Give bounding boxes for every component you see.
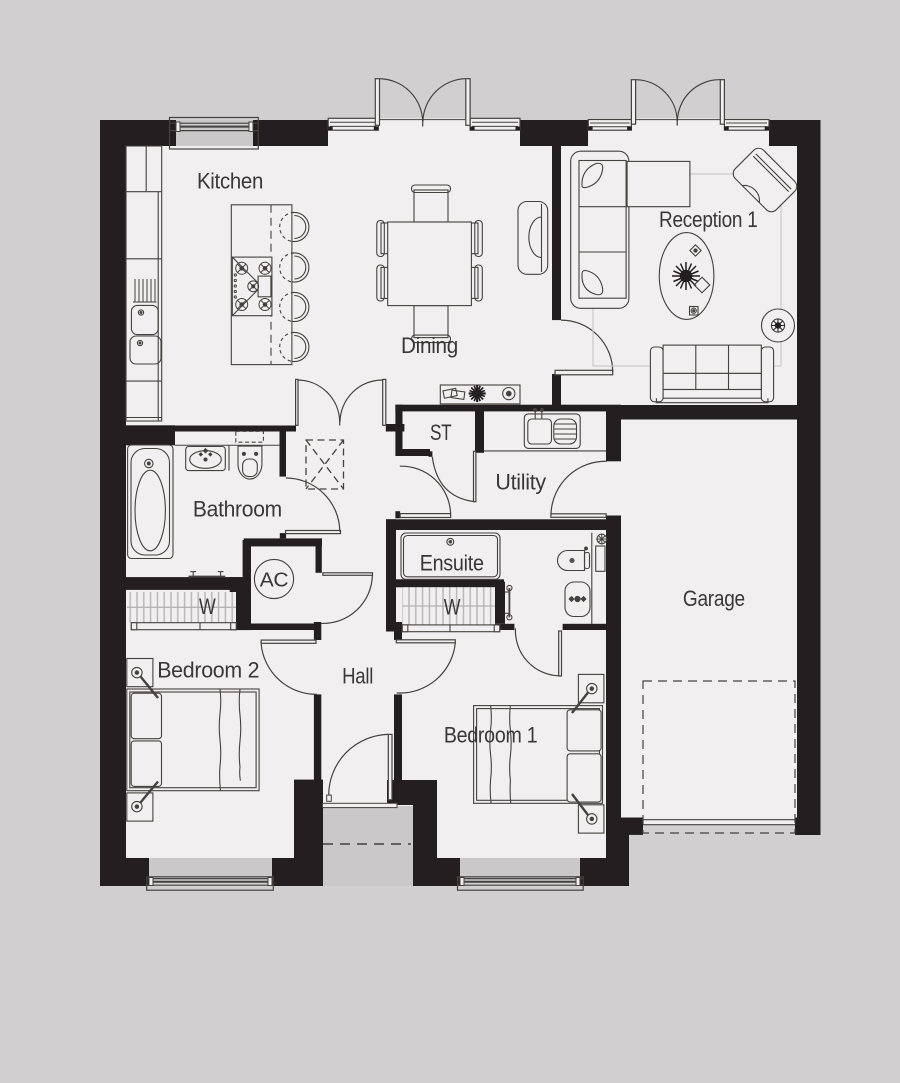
svg-text:Utility: Utility bbox=[495, 469, 546, 494]
svg-text:W: W bbox=[199, 594, 216, 619]
svg-text:AC: AC bbox=[260, 570, 289, 592]
svg-text:W: W bbox=[444, 595, 461, 620]
svg-text:Hall: Hall bbox=[342, 663, 373, 688]
svg-text:Bathroom: Bathroom bbox=[193, 497, 282, 522]
svg-text:Ensuite: Ensuite bbox=[420, 551, 484, 576]
svg-text:ST: ST bbox=[430, 420, 452, 445]
svg-text:Kitchen: Kitchen bbox=[197, 169, 263, 194]
svg-text:Bedroom 1: Bedroom 1 bbox=[444, 723, 538, 748]
svg-text:Dining: Dining bbox=[401, 333, 458, 358]
svg-text:Bedroom 2: Bedroom 2 bbox=[157, 658, 259, 683]
svg-text:Reception 1: Reception 1 bbox=[659, 207, 758, 232]
svg-text:Garage: Garage bbox=[683, 586, 745, 611]
